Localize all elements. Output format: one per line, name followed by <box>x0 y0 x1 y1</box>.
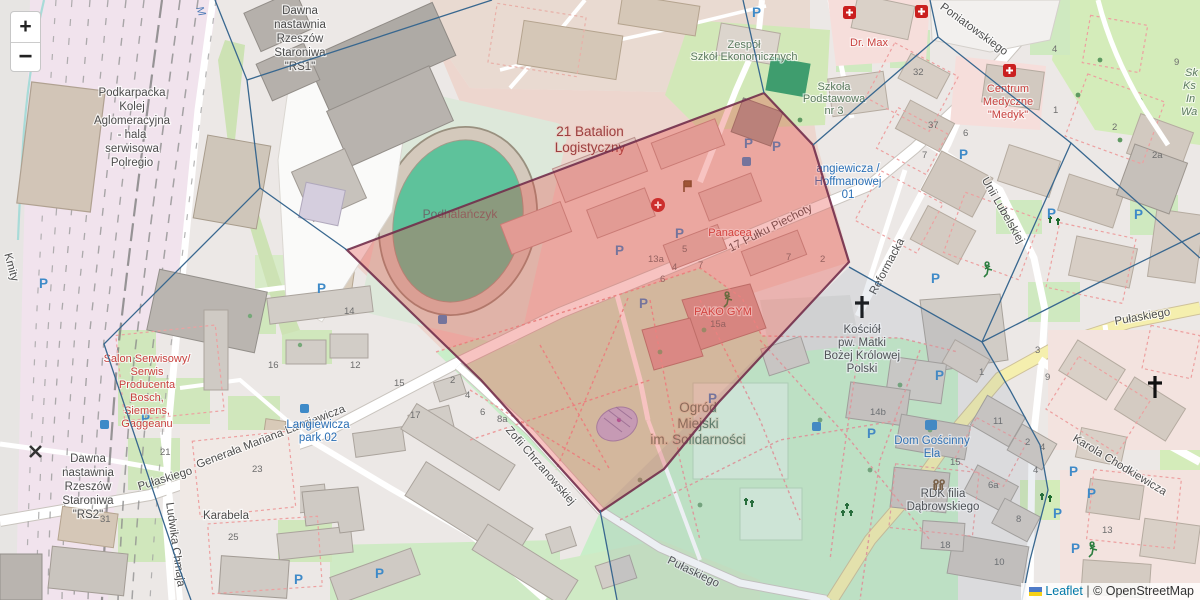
svg-text:13: 13 <box>1102 525 1113 536</box>
svg-text:- hala: - hala <box>118 129 147 141</box>
svg-text:Polregio: Polregio <box>111 157 153 169</box>
svg-text:P: P <box>317 281 326 296</box>
svg-text:Sk: Sk <box>1185 67 1198 79</box>
svg-text:nr 3: nr 3 <box>825 105 844 117</box>
svg-text:1: 1 <box>1053 105 1058 116</box>
svg-text:2: 2 <box>1112 122 1117 133</box>
svg-text:6: 6 <box>963 128 968 139</box>
svg-text:Rzeszów: Rzeszów <box>65 481 112 493</box>
svg-text:Ks: Ks <box>1183 80 1196 92</box>
svg-text:P: P <box>39 276 48 291</box>
svg-text:2: 2 <box>450 375 455 386</box>
svg-text:"RS2": "RS2" <box>73 509 104 521</box>
svg-text:Salon Serwisowy/: Salon Serwisowy/ <box>104 353 192 365</box>
svg-text:P: P <box>931 271 940 286</box>
svg-text:7: 7 <box>922 150 927 161</box>
svg-text:P: P <box>1071 541 1080 556</box>
svg-text:9: 9 <box>1174 57 1179 68</box>
svg-text:17: 17 <box>410 410 421 421</box>
svg-text:8a: 8a <box>497 414 508 425</box>
svg-text:Zespół: Zespół <box>727 39 761 51</box>
svg-text:nastawnia: nastawnia <box>274 19 326 31</box>
svg-text:14: 14 <box>344 306 355 317</box>
svg-text:Bosch,: Bosch, <box>130 392 164 404</box>
svg-text:Dr. Max: Dr. Max <box>850 37 888 49</box>
svg-text:25: 25 <box>228 532 239 543</box>
svg-text:P: P <box>752 5 761 20</box>
svg-text:31: 31 <box>100 514 111 525</box>
svg-text:P: P <box>375 566 384 581</box>
svg-text:P: P <box>294 572 303 587</box>
svg-text:Dawna: Dawna <box>70 453 106 465</box>
svg-text:nastawnia: nastawnia <box>62 467 114 479</box>
svg-text:21 Batalion: 21 Batalion <box>556 124 624 139</box>
svg-text:P: P <box>1047 206 1056 221</box>
svg-text:park 02: park 02 <box>299 432 337 444</box>
svg-text:Siemens,: Siemens, <box>124 405 170 417</box>
svg-text:Aglomeracyjna: Aglomeracyjna <box>94 115 171 127</box>
svg-text:37: 37 <box>928 120 939 131</box>
svg-text:Podkarpacka: Podkarpacka <box>98 87 166 99</box>
svg-text:Rzeszów: Rzeszów <box>277 33 324 45</box>
svg-text:Serwis: Serwis <box>130 366 164 378</box>
svg-text:23: 23 <box>252 464 263 475</box>
svg-text:9: 9 <box>1045 372 1050 383</box>
svg-text:Staroniwa: Staroniwa <box>62 495 114 507</box>
svg-text:angiewicza /: angiewicza / <box>816 163 880 175</box>
svg-text:P: P <box>1053 506 1062 521</box>
svg-text:4: 4 <box>1052 44 1057 55</box>
svg-text:Kolej: Kolej <box>119 101 145 113</box>
svg-text:Szkół Ekonomicznych: Szkół Ekonomicznych <box>691 51 798 63</box>
svg-text:In: In <box>1186 93 1195 105</box>
svg-text:Wa: Wa <box>1181 106 1197 118</box>
svg-text:Langiewicza: Langiewicza <box>286 419 350 431</box>
svg-text:serwisowa: serwisowa <box>105 143 159 155</box>
svg-text:32: 32 <box>913 67 924 78</box>
svg-text:6: 6 <box>480 407 485 418</box>
svg-text:Karabela: Karabela <box>203 510 250 522</box>
svg-text:Szkoła: Szkoła <box>817 81 851 93</box>
svg-text:Dawna: Dawna <box>282 5 318 17</box>
svg-text:2a: 2a <box>1152 150 1163 161</box>
svg-text:P: P <box>1069 464 1078 479</box>
svg-text:"Medyk": "Medyk" <box>988 109 1028 121</box>
svg-text:P: P <box>959 147 968 162</box>
svg-text:21: 21 <box>160 447 171 458</box>
svg-text:16: 16 <box>268 360 279 371</box>
svg-text:15: 15 <box>394 378 405 389</box>
svg-text:P: P <box>1134 207 1143 222</box>
svg-text:4: 4 <box>465 390 470 401</box>
svg-text:12: 12 <box>350 360 361 371</box>
svg-text:3: 3 <box>1035 345 1040 356</box>
svg-text:Podstawowa: Podstawowa <box>803 93 866 105</box>
svg-text:P: P <box>1087 486 1096 501</box>
svg-text:01: 01 <box>842 189 855 201</box>
svg-text:Producenta: Producenta <box>119 379 176 391</box>
